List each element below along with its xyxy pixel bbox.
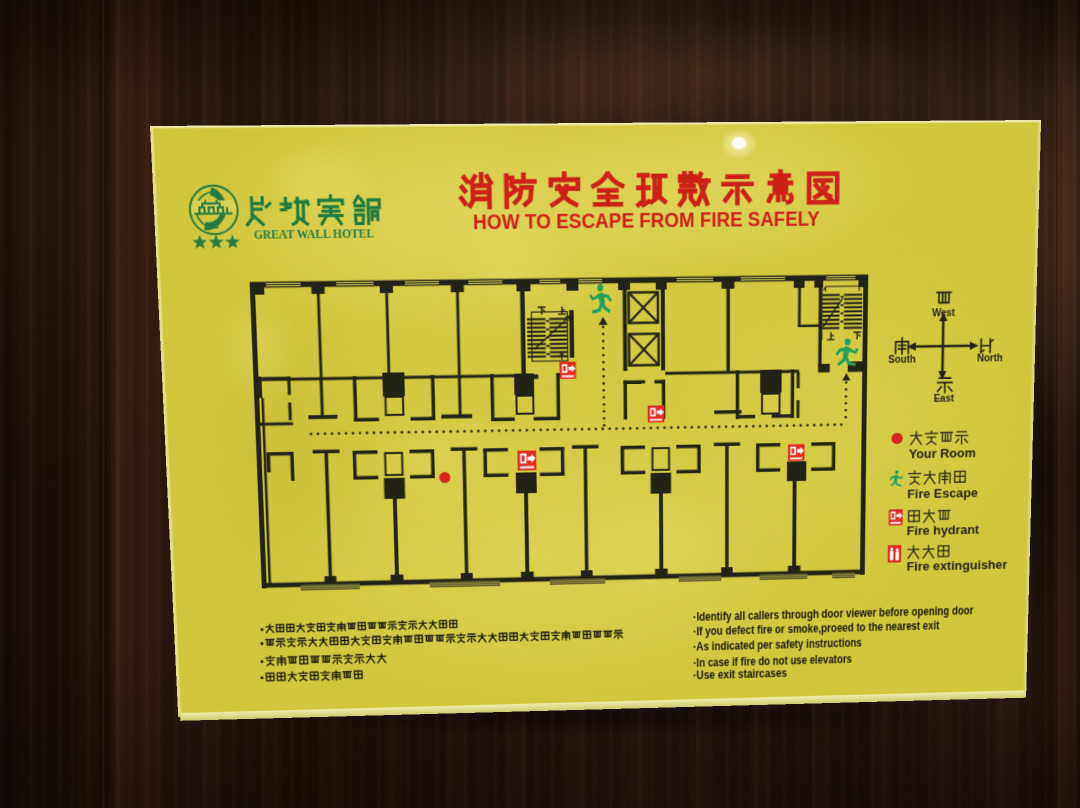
svg-text:HOW TO ESCAPE FROM FIRE SAFELY: HOW TO ESCAPE FROM FIRE SAFELY: [473, 206, 821, 234]
svg-text:East: East: [934, 393, 955, 405]
svg-text:·Use exit staircases: ·Use exit staircases: [693, 666, 787, 682]
svg-text:Fire extinguisher: Fire extinguisher: [907, 557, 1008, 574]
svg-text:GREAT WALL HOTEL: GREAT WALL HOTEL: [254, 227, 375, 242]
svg-text:West: West: [932, 308, 956, 320]
svg-text:South: South: [888, 354, 916, 366]
svg-text:Your Room: Your Room: [909, 445, 976, 461]
svg-text:Fire Escape: Fire Escape: [907, 485, 978, 501]
svg-text:North: North: [977, 353, 1003, 365]
svg-text:Fire hydrant: Fire hydrant: [907, 522, 980, 538]
